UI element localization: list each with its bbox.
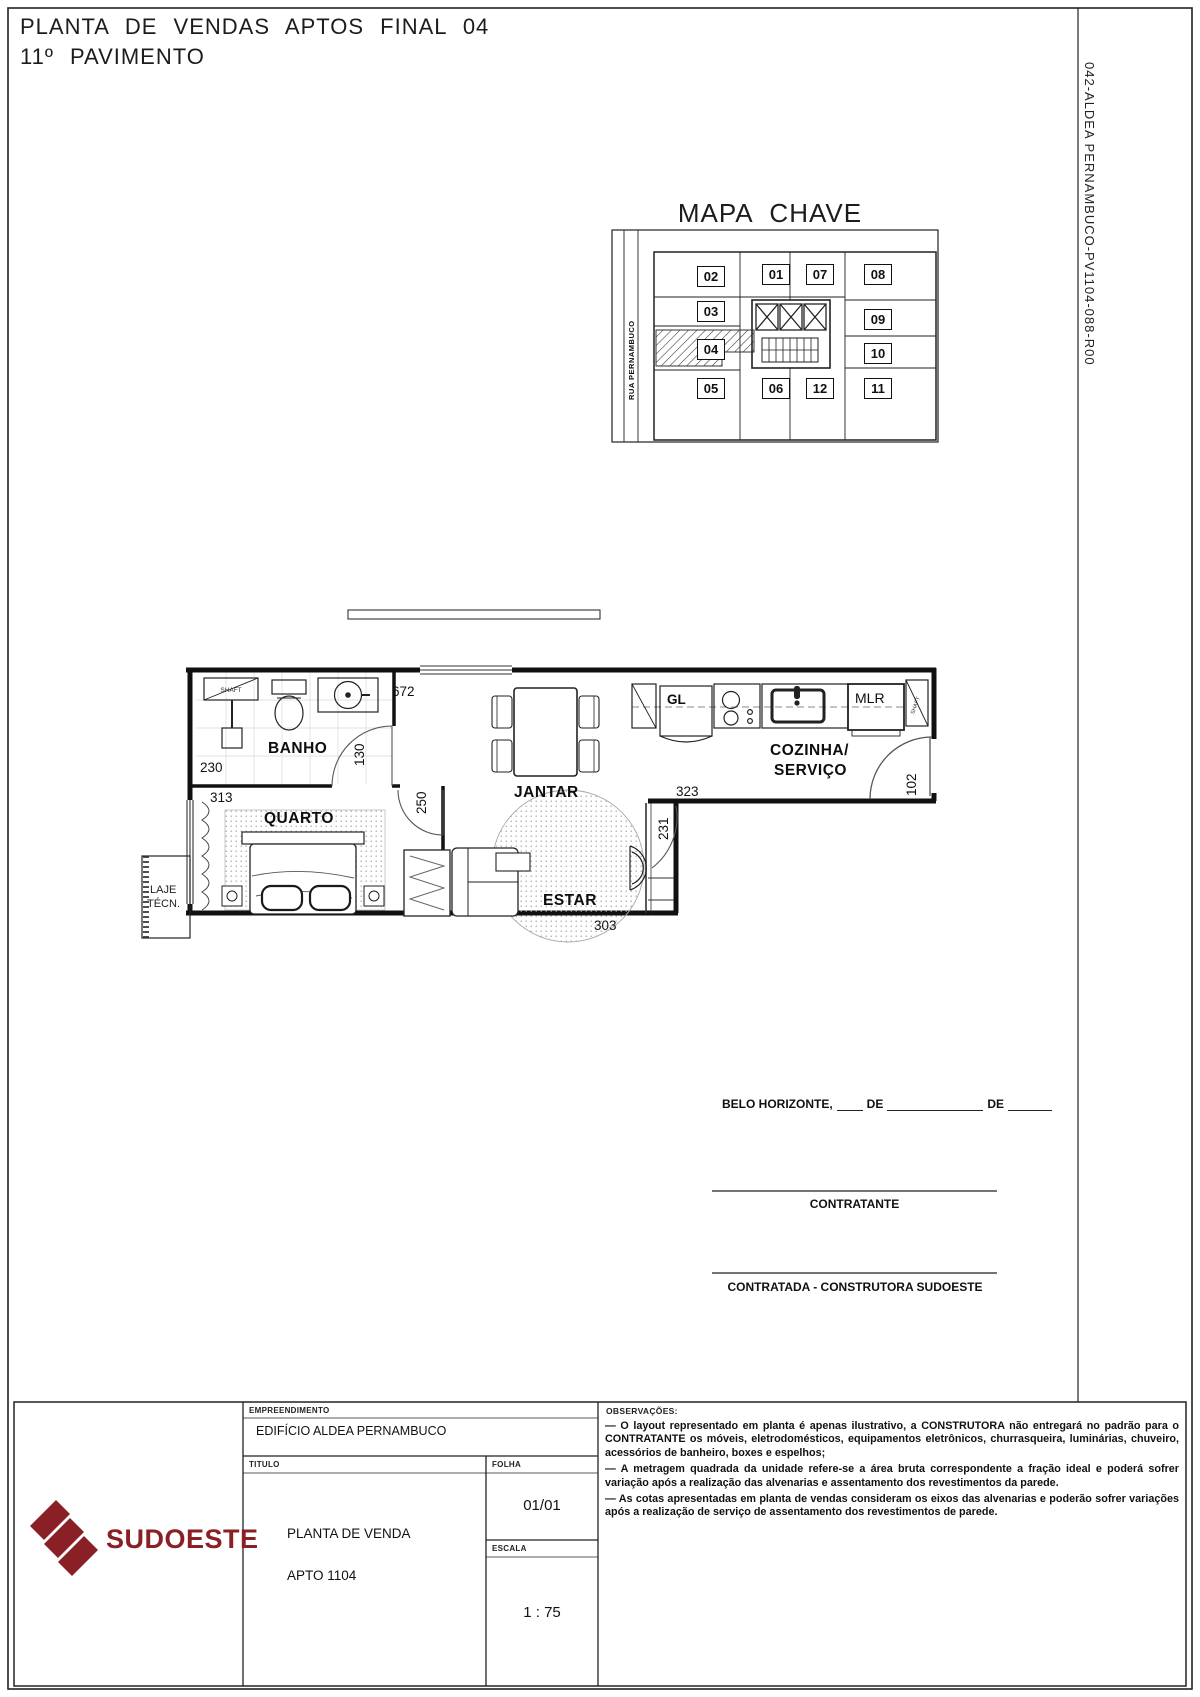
date-blank-day <box>837 1099 863 1111</box>
room-label-quarto: QUARTO <box>264 810 334 828</box>
laje-tecnica <box>142 856 190 938</box>
observacao-item: — A metragem quadrada da unidade refere-… <box>605 1463 1179 1490</box>
observacoes-text: — O layout representado em planta é apen… <box>605 1420 1179 1523</box>
observacao-item: — O layout representado em planta é apen… <box>605 1420 1179 1460</box>
key-map-unit: 01 <box>762 264 790 285</box>
key-map-title: MAPA CHAVE <box>640 198 900 229</box>
date-blank-month <box>887 1099 983 1111</box>
room-label-jantar: JANTAR <box>514 784 579 802</box>
key-map-unit: 03 <box>697 301 725 322</box>
date-de2-label: DE <box>987 1097 1004 1111</box>
street-label: RUA PERNAMBUCO <box>627 320 636 400</box>
room-label-cozinha-line1: COZINHA/ <box>770 742 849 760</box>
dim-672: 672 <box>392 684 415 699</box>
washer-label: MLR <box>855 690 885 706</box>
dim-102: 102 <box>904 773 919 796</box>
date-line: BELO HORIZONTE, DE DE <box>722 1097 1052 1111</box>
room-label-cozinha-line2: SERVIÇO <box>774 762 847 780</box>
dim-303: 303 <box>594 918 617 933</box>
dim-250: 250 <box>414 791 429 814</box>
key-map-core <box>752 300 830 368</box>
contratante-label: CONTRATANTE <box>712 1197 997 1211</box>
key-map-unit: 11 <box>864 378 892 399</box>
observacao-item: — As cotas apresentadas em planta de ven… <box>605 1493 1179 1520</box>
sheet-title-line2: 11º PAVIMENTO <box>20 44 205 70</box>
dim-130: 130 <box>352 743 367 766</box>
key-map-unit: 08 <box>864 264 892 285</box>
laje-label-line2: TÉCN. <box>147 898 180 910</box>
dining-furniture <box>492 688 599 776</box>
drawing-sheet: SHAFT SHAFT PLANTA DE VENDAS APTOS FINAL… <box>0 0 1200 1697</box>
escala-label: ESCALA <box>492 1544 527 1553</box>
folha-value: 01/01 <box>486 1497 598 1514</box>
key-map-unit: 05 <box>697 378 725 399</box>
key-map-unit: 12 <box>806 378 834 399</box>
key-map-unit: 06 <box>762 378 790 399</box>
key-map-unit: 10 <box>864 343 892 364</box>
dim-230: 230 <box>200 760 223 775</box>
sheet-title-line1: PLANTA DE VENDAS APTOS FINAL 04 <box>20 14 489 40</box>
document-number: 042-ALDEA PERNAMBUCO-PV1104-088-R00 <box>1082 62 1097 366</box>
dim-231: 231 <box>656 817 671 840</box>
sudoeste-logo-mark <box>30 1500 98 1576</box>
folha-label: FOLHA <box>492 1460 521 1469</box>
room-label-estar: ESTAR <box>543 892 597 910</box>
sudoeste-logo-text: SUDOESTE <box>106 1524 259 1555</box>
empreendimento-value: EDIFÍCIO ALDEA PERNAMBUCO <box>256 1424 446 1438</box>
contratada-label: CONTRATADA - CONSTRUTORA SUDOESTE <box>680 1280 1030 1294</box>
observacoes-label: OBSERVAÇÕES: <box>606 1406 678 1416</box>
titulo-line2: APTO 1104 <box>287 1568 356 1583</box>
date-blank-year <box>1008 1099 1052 1111</box>
room-label-banho: BANHO <box>268 740 327 758</box>
key-map-unit: 02 <box>697 266 725 287</box>
dim-323: 323 <box>676 784 699 799</box>
key-map-unit-highlighted: 04 <box>697 339 725 360</box>
shaft-servico-label: SHAFT <box>910 696 922 716</box>
laje-label-line1: LAJE <box>150 884 176 896</box>
empreendimento-label: EMPREENDIMENTO <box>249 1406 330 1415</box>
titulo-line1: PLANTA DE VENDA <box>287 1526 411 1541</box>
shaft-banho-label: SHAFT <box>220 687 241 694</box>
key-map-unit: 09 <box>864 309 892 330</box>
date-city-label: BELO HORIZONTE, <box>722 1097 833 1111</box>
escala-value: 1 : 75 <box>486 1604 598 1621</box>
key-map-drawing <box>612 230 938 442</box>
dim-313: 313 <box>210 790 233 805</box>
key-map-unit: 07 <box>806 264 834 285</box>
fridge-label: GL <box>667 692 686 707</box>
titulo-label: TITULO <box>249 1460 280 1469</box>
date-de1-label: DE <box>867 1097 884 1111</box>
